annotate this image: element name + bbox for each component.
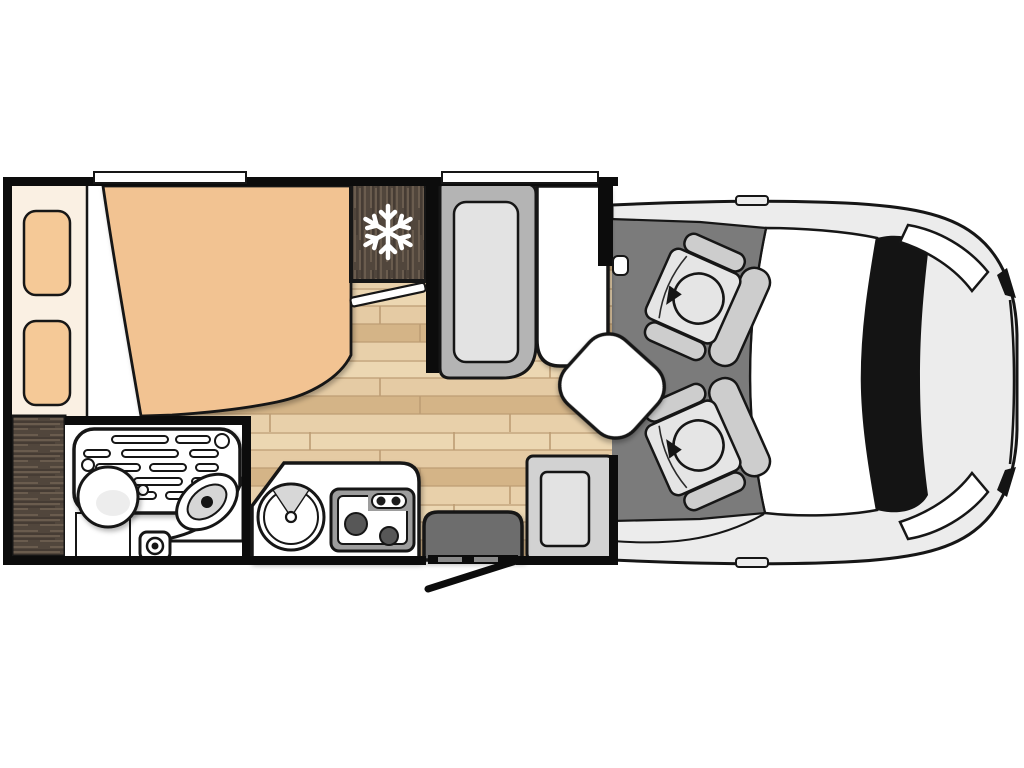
floorplan-canvas [0,0,1024,768]
wall-bottom-right [516,556,618,565]
cab-entry-trim [613,256,628,275]
habitation-area [3,172,628,565]
entrance [424,512,522,564]
threshold-dash [438,557,462,562]
wall-bottom-left [3,556,426,565]
stove-knob [392,497,401,506]
threshold-dash [474,557,498,562]
bathroom-wall-top [65,416,250,425]
window-bedroom [94,172,246,183]
bathroom-wall-right [242,416,251,556]
floor-drain [140,532,170,560]
bathroom [65,416,251,560]
windshield-pillar-band [862,236,928,513]
burner-large [345,513,367,535]
partition-wall [426,177,439,373]
double-bed [103,186,351,416]
refrigerator [351,184,426,281]
two-burner-stove [331,489,414,551]
motorhome-floorplan [0,0,1024,768]
pillow-right [24,321,70,405]
windshield [750,228,877,515]
entry-bench [527,456,613,560]
entry-bench-cushion [541,472,589,546]
window-dinette [442,172,598,183]
wall-right-upper [598,177,613,266]
pillow-left [24,211,70,295]
kitchen [252,463,419,561]
wall-left [3,177,12,565]
entry-step [424,512,522,560]
entry-door [428,561,516,589]
wardrobe [12,416,65,556]
burner-small [380,527,398,545]
dinette-bench-cushion [454,202,518,362]
mirror-left [736,196,768,205]
mirror-right [736,558,768,567]
stove-knob [377,497,386,506]
round-sink [258,484,324,550]
bedroom [12,186,351,416]
wall-right-lower [609,455,618,565]
washbasin-shade [96,490,130,516]
